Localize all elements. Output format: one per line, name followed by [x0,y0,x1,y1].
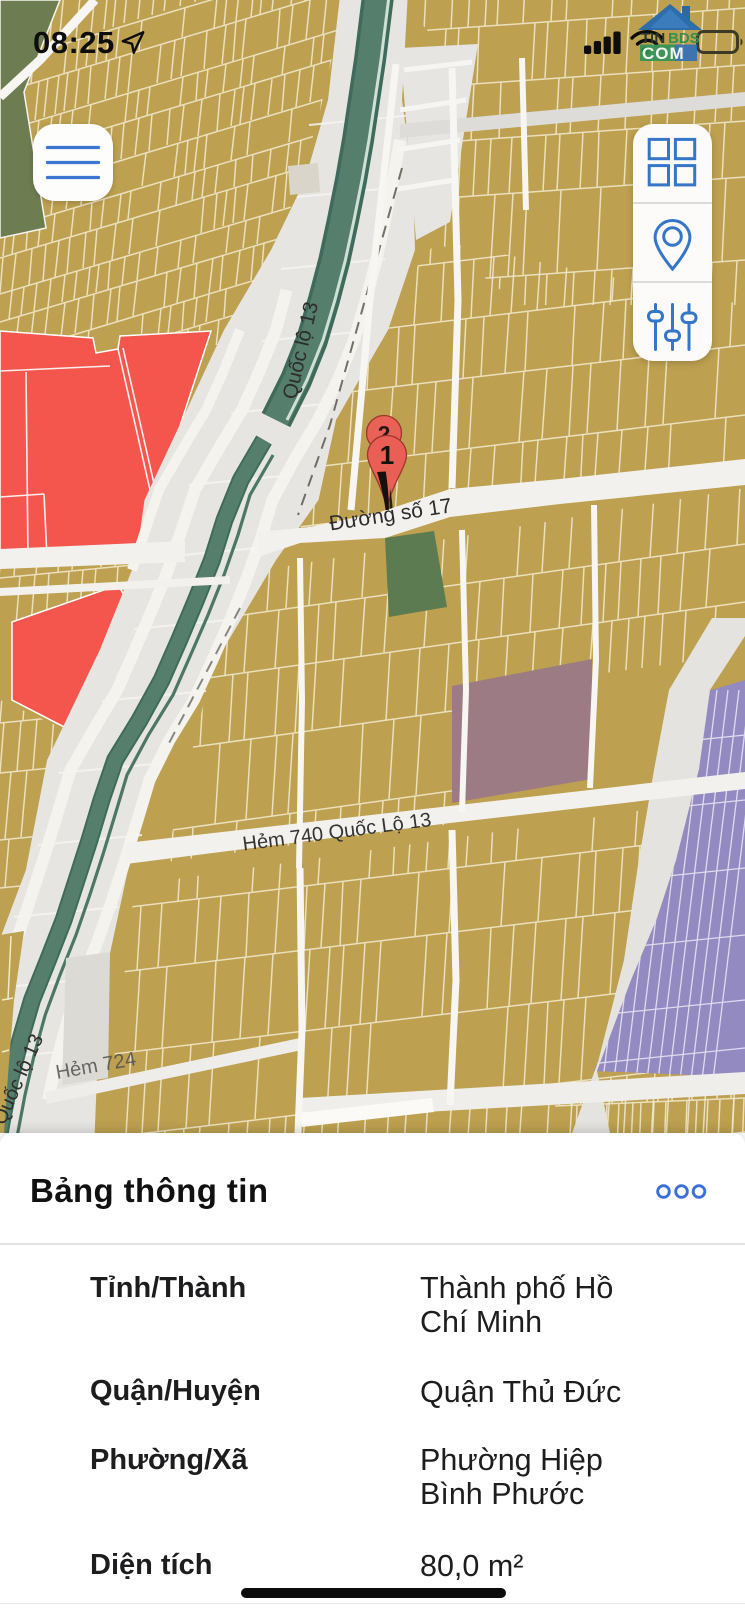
svg-text:1: 1 [380,440,394,470]
svg-text:COM: COM [642,44,685,63]
